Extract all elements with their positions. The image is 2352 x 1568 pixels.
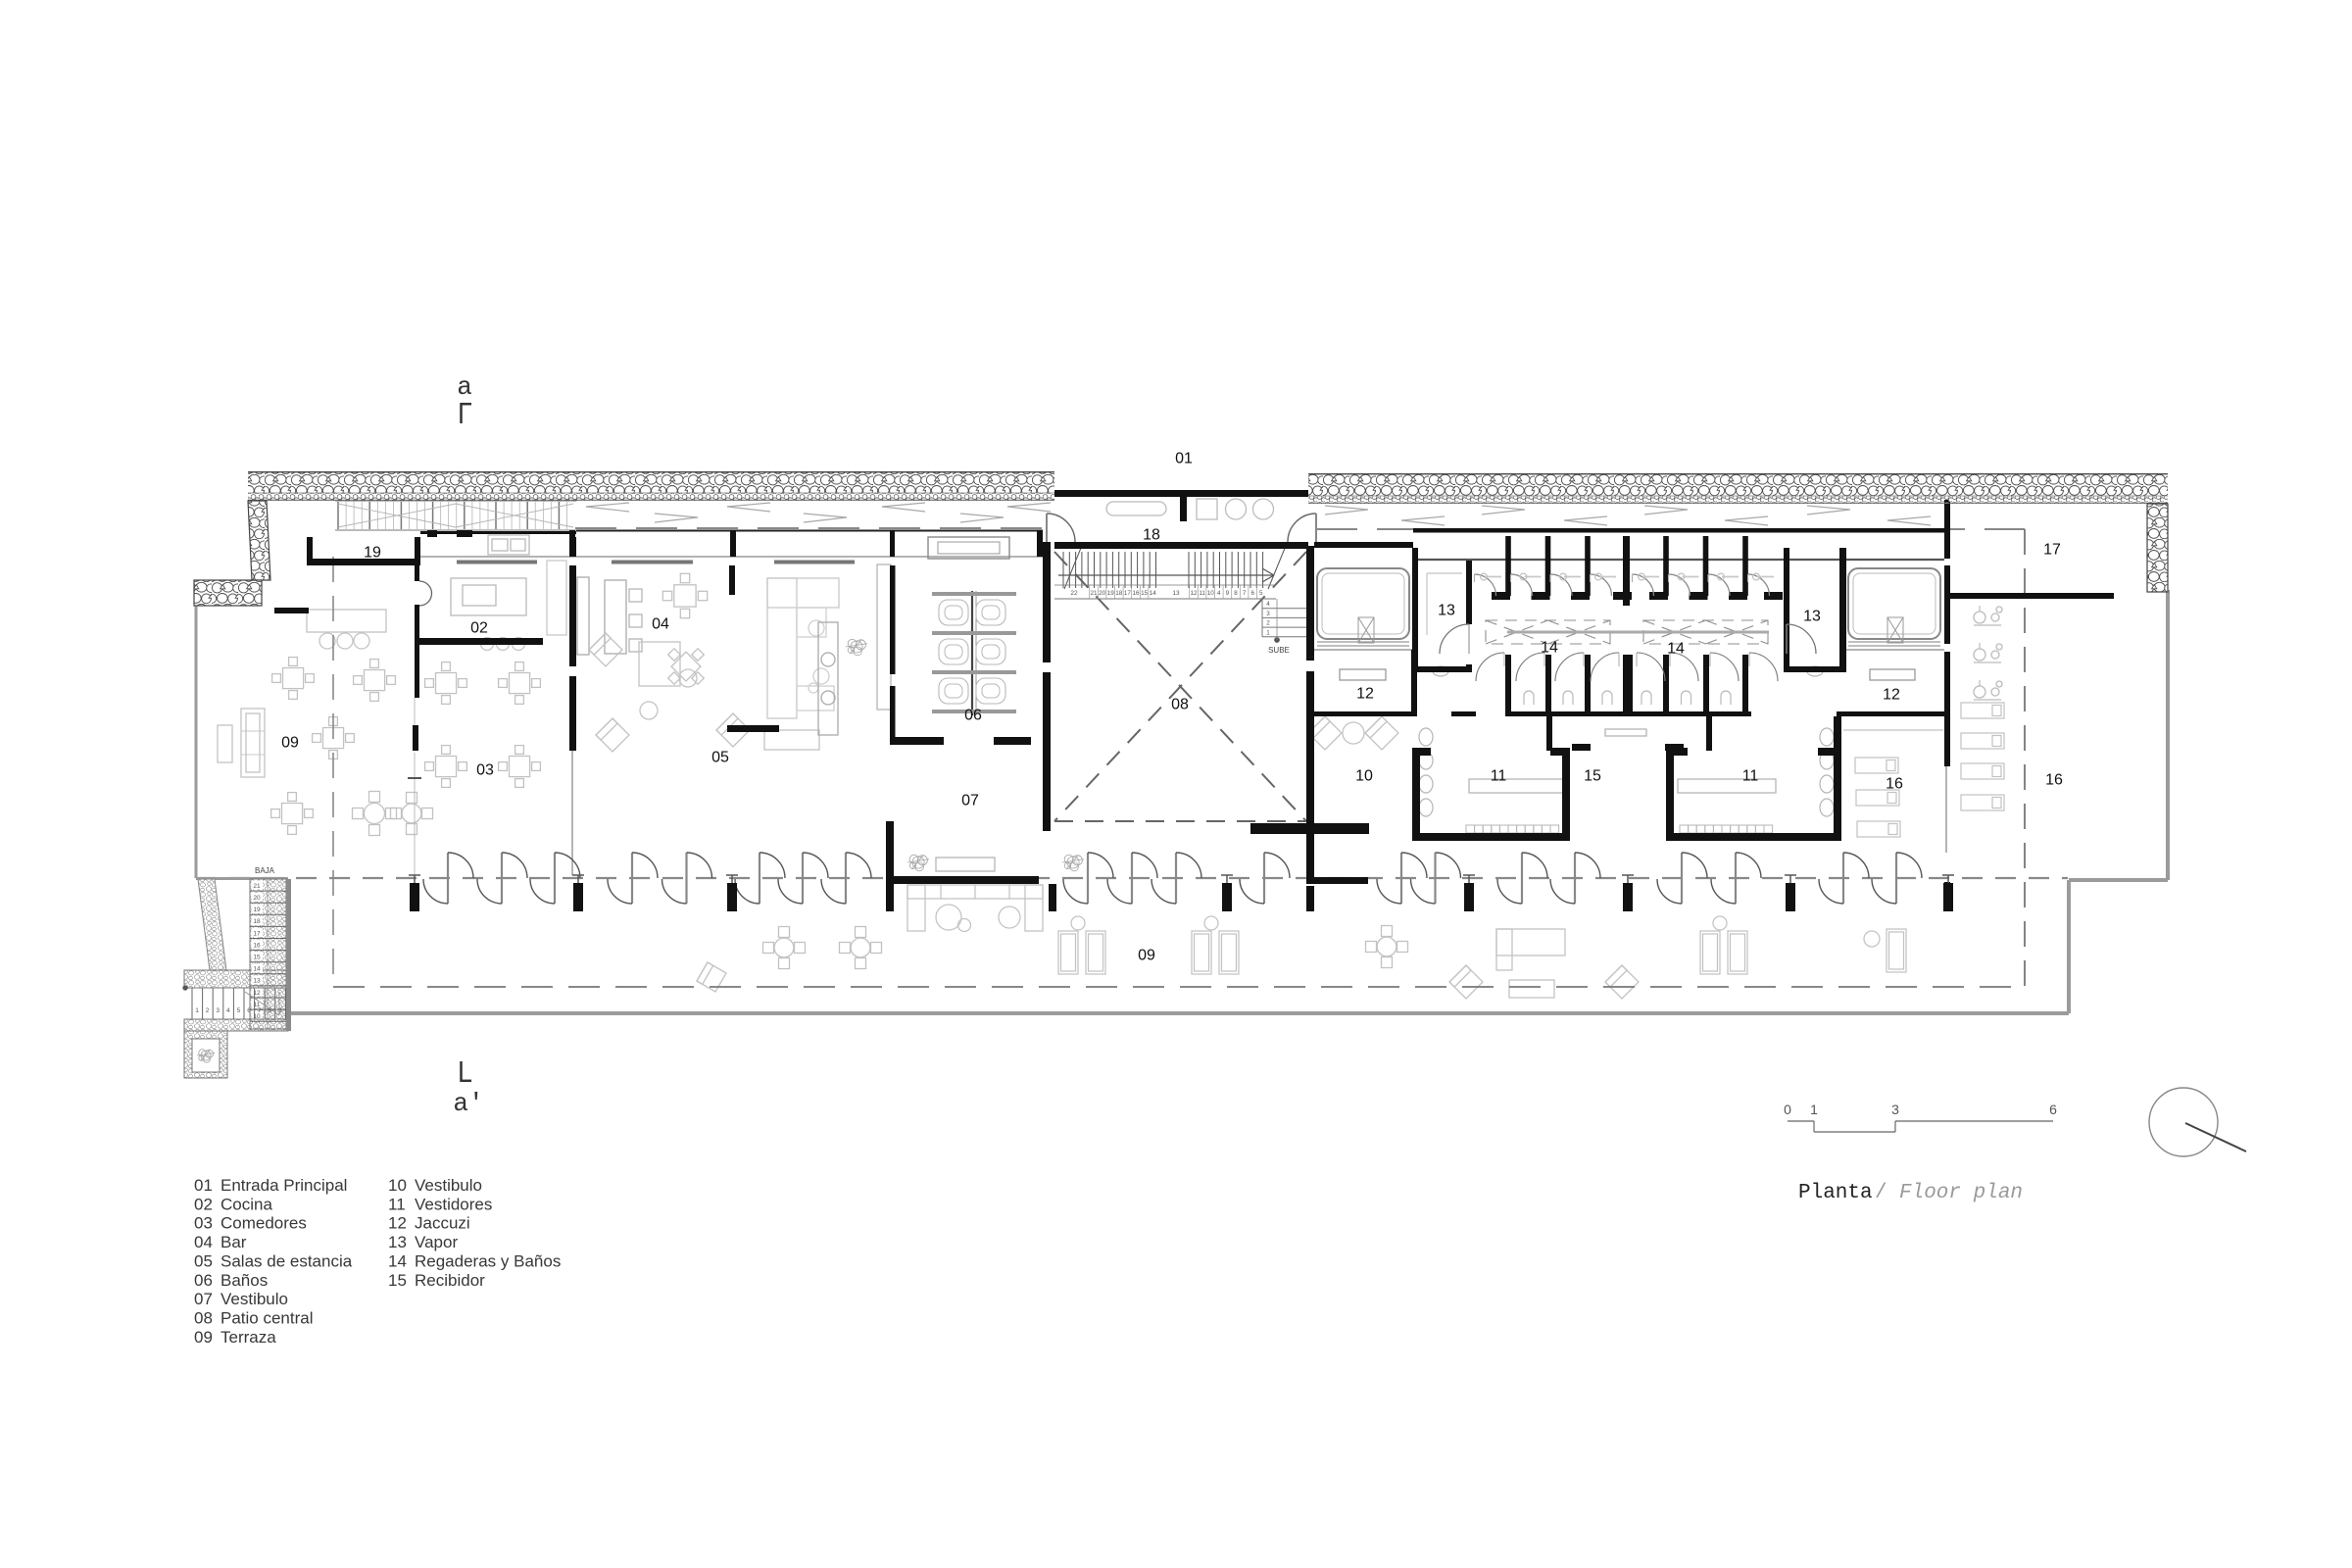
svg-text:21: 21	[1090, 590, 1098, 597]
svg-text:18: 18	[253, 918, 261, 925]
svg-text:Recibidor: Recibidor	[415, 1271, 485, 1290]
svg-text:06: 06	[194, 1271, 213, 1290]
svg-text:16: 16	[1886, 776, 1903, 793]
svg-text:0: 0	[1784, 1102, 1791, 1117]
svg-text:11: 11	[1491, 768, 1507, 785]
svg-text:02: 02	[470, 620, 488, 637]
svg-text:13: 13	[388, 1233, 407, 1251]
svg-text:18: 18	[1115, 590, 1123, 597]
svg-text:19: 19	[253, 906, 261, 913]
svg-text:15: 15	[388, 1271, 407, 1290]
svg-text:Floor plan: Floor plan	[1899, 1182, 2023, 1204]
svg-text:Patio central: Patio central	[220, 1309, 314, 1328]
svg-text:12: 12	[1883, 687, 1900, 704]
svg-text:1: 1	[1266, 629, 1270, 636]
svg-text:Planta: Planta	[1798, 1182, 1873, 1204]
svg-text:18: 18	[1143, 527, 1160, 544]
svg-text:04: 04	[194, 1233, 213, 1251]
svg-text:Vapor: Vapor	[415, 1233, 458, 1251]
svg-text:16: 16	[1132, 590, 1140, 597]
svg-text:12: 12	[1356, 686, 1374, 703]
svg-text:08: 08	[194, 1309, 213, 1328]
svg-text:a: a	[457, 372, 472, 402]
svg-text:13: 13	[253, 978, 261, 985]
svg-text:20: 20	[1099, 590, 1106, 597]
svg-text:13: 13	[1172, 590, 1180, 597]
svg-text:19: 19	[1107, 590, 1115, 597]
svg-text:17: 17	[253, 930, 261, 937]
svg-text:11: 11	[1199, 590, 1205, 597]
svg-text:9: 9	[1226, 590, 1230, 597]
svg-text:07: 07	[961, 793, 979, 809]
svg-text:02: 02	[194, 1195, 213, 1213]
svg-text:Vestidores: Vestidores	[415, 1195, 492, 1213]
svg-text:10: 10	[1355, 768, 1373, 785]
svg-text:15: 15	[1584, 768, 1601, 785]
svg-text:16: 16	[2045, 772, 2063, 789]
svg-text:5: 5	[1259, 590, 1263, 597]
svg-text:Bar: Bar	[220, 1233, 247, 1251]
svg-text:Baños: Baños	[220, 1271, 268, 1290]
svg-text:14: 14	[253, 966, 261, 973]
svg-text:15: 15	[1141, 590, 1149, 597]
svg-text:Entrada Principal: Entrada Principal	[220, 1176, 347, 1195]
svg-text:6: 6	[1250, 590, 1254, 597]
svg-text:1: 1	[195, 1007, 199, 1014]
svg-text:19: 19	[364, 545, 381, 562]
svg-text:04: 04	[652, 616, 669, 633]
svg-text:Jaccuzi: Jaccuzi	[415, 1214, 470, 1233]
svg-text:9: 9	[278, 1007, 282, 1014]
svg-text:Comedores: Comedores	[220, 1214, 307, 1233]
svg-text:17: 17	[1124, 590, 1132, 597]
svg-text:09: 09	[1138, 948, 1155, 964]
svg-text:10: 10	[1207, 590, 1215, 597]
svg-text:09: 09	[194, 1328, 213, 1347]
svg-text:07: 07	[194, 1290, 213, 1308]
svg-text:/: /	[1875, 1182, 1887, 1204]
svg-text:01: 01	[1175, 451, 1193, 467]
svg-text:06: 06	[964, 708, 982, 724]
svg-text:2: 2	[206, 1007, 210, 1014]
svg-text:8: 8	[1234, 590, 1238, 597]
svg-text:Vestibulo: Vestibulo	[220, 1290, 288, 1308]
svg-text:10: 10	[388, 1176, 407, 1195]
svg-text:13: 13	[1803, 609, 1821, 625]
svg-text:Terraza: Terraza	[220, 1328, 276, 1347]
svg-text:6: 6	[2049, 1102, 2057, 1117]
svg-text:3: 3	[216, 1007, 220, 1014]
svg-text:17: 17	[2043, 542, 2061, 559]
svg-text:BAJA: BAJA	[255, 866, 275, 875]
svg-text:Vestibulo: Vestibulo	[415, 1176, 482, 1195]
svg-text:SUBE: SUBE	[1268, 646, 1290, 655]
svg-text:03: 03	[194, 1214, 213, 1233]
svg-text:5: 5	[237, 1007, 241, 1014]
svg-text:4: 4	[1217, 590, 1221, 597]
svg-text:03: 03	[476, 762, 494, 779]
svg-text:21: 21	[253, 883, 261, 890]
svg-text:11: 11	[1742, 768, 1759, 785]
svg-text:4: 4	[1266, 601, 1270, 608]
svg-text:14: 14	[1667, 641, 1685, 658]
svg-text:09: 09	[281, 735, 299, 752]
svg-text:6: 6	[247, 1007, 251, 1014]
svg-text:05: 05	[711, 750, 729, 766]
svg-text:Cocina: Cocina	[220, 1195, 272, 1213]
svg-text:3: 3	[1266, 611, 1270, 617]
svg-text:14: 14	[1541, 640, 1558, 657]
svg-text:01: 01	[194, 1176, 213, 1195]
svg-text:15: 15	[253, 955, 261, 961]
svg-text:Regaderas y Baños: Regaderas y Baños	[415, 1251, 561, 1270]
svg-text:Salas de estancia: Salas de estancia	[220, 1251, 353, 1270]
svg-text:20: 20	[253, 895, 261, 902]
svg-text:22: 22	[1070, 590, 1078, 597]
svg-text:a': a'	[453, 1089, 483, 1118]
svg-text:14: 14	[388, 1251, 407, 1270]
svg-text:12: 12	[1190, 590, 1198, 597]
svg-text:4: 4	[226, 1007, 230, 1014]
svg-text:3: 3	[1891, 1102, 1899, 1117]
svg-text:7: 7	[258, 1007, 262, 1014]
svg-text:1: 1	[1810, 1102, 1818, 1117]
svg-text:2: 2	[1266, 620, 1270, 627]
svg-text:13: 13	[1438, 603, 1455, 619]
svg-text:12: 12	[388, 1214, 407, 1233]
svg-text:11: 11	[388, 1195, 406, 1213]
svg-text:7: 7	[1243, 590, 1247, 597]
svg-text:05: 05	[194, 1251, 213, 1270]
svg-text:08: 08	[1171, 697, 1189, 713]
svg-text:14: 14	[1150, 590, 1157, 597]
svg-text:16: 16	[253, 942, 261, 949]
